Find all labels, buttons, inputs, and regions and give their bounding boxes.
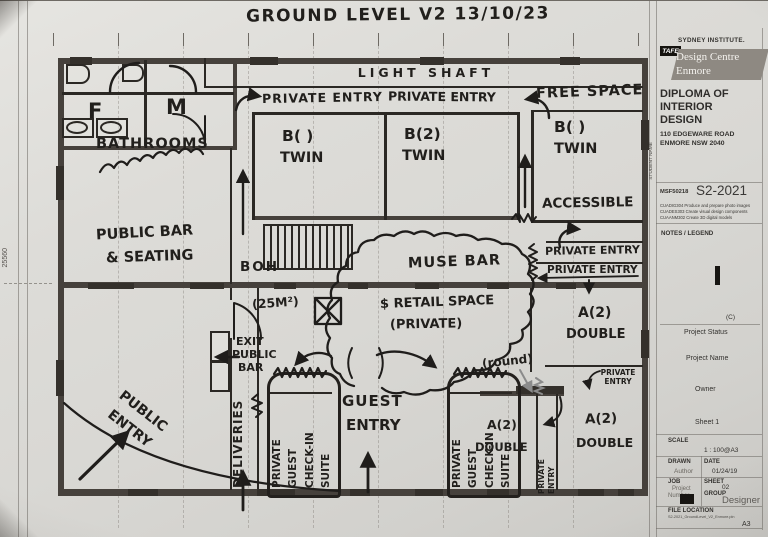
suite-2-label: PRIVATE GUEST CHECK-IN SUITE [452, 382, 512, 488]
unit-line3: CUAANM302 Create 3D digital models [660, 215, 732, 220]
label-private-entry-mid-1: PRIVATE ENTRY [545, 244, 640, 257]
scale-label: SCALE [668, 438, 688, 444]
scale-value: 1 : 100@A3 [704, 447, 738, 454]
label-a2-sw-type: DOUBLE [475, 441, 528, 453]
arrow-corridor-hook [546, 397, 561, 424]
label-guest: GUEST [342, 394, 403, 410]
label-private-entry-mid-2: PRIVATE ENTRY [547, 265, 638, 276]
group-value: Designer [722, 495, 760, 506]
scallop-underline [100, 149, 203, 172]
label-a2-ne: A(2) [578, 306, 611, 321]
author-value: Author [674, 468, 693, 475]
drawn-label: DRAWN [668, 459, 691, 465]
design-centre-text: Design Centre Enmore [676, 51, 764, 79]
label-a2-se-type: DOUBLE [576, 436, 633, 449]
project-status-label: Project Status [684, 329, 728, 336]
label-private-entry-top-left: PRIVATE ENTRY [262, 90, 383, 105]
date-label: DATE [704, 459, 720, 465]
unit-line2: CUADES303 Create visual design component… [660, 209, 748, 214]
hand-mark [680, 494, 694, 504]
address-line1: 110 EDGEWARE ROAD [660, 131, 734, 138]
copyright-label: (C) [726, 314, 735, 321]
label-a2-se: A(2) [585, 411, 618, 426]
label-room-b2-type: TWIN [402, 149, 445, 164]
file-path: S2-2021_GroundLevel_V2_Enmore.pln [668, 515, 758, 519]
label-area-25m2: (25M²) [252, 294, 300, 310]
address-line2: ENMORE NSW 2040 [660, 140, 725, 147]
arrow-public-entry [80, 434, 126, 479]
label-exit-bar: BAR [238, 362, 263, 374]
design-centre-line1: Design Centre [676, 51, 764, 65]
door-arc [110, 63, 139, 92]
hand-mark [715, 266, 720, 285]
label-retail-private: (PRIVATE) [390, 317, 462, 332]
label-muse-bar: MUSE BAR [408, 253, 502, 271]
course-line2: INTERIOR [660, 101, 713, 113]
suite-word: PRIVATE [272, 382, 283, 488]
unit-line1: CUADIG304 Produce and prepare photo imag… [660, 203, 750, 208]
arrow-to-suite-1 [297, 353, 331, 363]
label-exit: EXIT [236, 336, 264, 348]
label-female: F [88, 100, 102, 122]
titleblock-border [649, 0, 650, 537]
notes-legend-label: NOTES / LEGEND [661, 230, 713, 237]
entry-gap-curve [348, 348, 352, 378]
titleblock-divider [656, 528, 762, 529]
floor-plan-sheet-photo: GROUND LEVEL V2 13/10/23 25560 [0, 0, 768, 537]
arrow-round-note [520, 370, 531, 390]
date-value: 01/24/19 [712, 468, 737, 475]
titleblock-divider [656, 456, 762, 457]
label-accessible: ACCESSIBLE [542, 195, 634, 211]
suite-top-squiggle [274, 368, 326, 377]
suite-word: CHECK-IN [485, 382, 496, 488]
course-line3: DESIGN [660, 114, 702, 126]
corridor-private-entry-label: PRIVATE ENTRY [538, 434, 556, 494]
arrow-private-entry-left [236, 96, 258, 110]
door-arc [170, 66, 196, 92]
paper-size: A3 [742, 521, 751, 528]
sheet-label: SHEET [704, 479, 724, 485]
arrow-entry-strike [540, 276, 638, 278]
label-room-b3-type: TWIN [554, 142, 597, 157]
titleblock-divider [656, 477, 762, 478]
label-a2-ne-type: DOUBLE [566, 328, 625, 342]
titleblock-divider [656, 434, 762, 435]
wall-break-squiggle [512, 214, 536, 222]
label-private-entry-top-right: PRIVATE ENTRY [388, 90, 496, 104]
label-a2-sw: A(2) [487, 418, 517, 431]
suite-word: SUITE [321, 382, 332, 488]
suite-1-label: PRIVATE GUEST CHECK-IN SUITE [272, 382, 332, 488]
project-name-label: Project Name [686, 355, 728, 362]
round-squiggle [535, 378, 543, 394]
suite-word: GUEST [468, 382, 479, 488]
label-male: M [166, 96, 187, 118]
label-private-entry-small: PRIVATE ENTRY [596, 368, 640, 386]
job-label: JOB [668, 479, 680, 485]
course-code: MSF50218 [660, 189, 688, 195]
label-room-b1-type: TWIN [280, 151, 323, 166]
label-exit-public: PUBLIC [232, 349, 277, 361]
titleblock-border [762, 28, 763, 530]
course-line1: DIPLOMA OF [660, 88, 729, 100]
titleblock-divider [656, 506, 762, 507]
owner-label: Owner [695, 386, 716, 393]
semester-code: S2-2021 [696, 183, 747, 198]
titleblock-divider [660, 324, 760, 325]
label-light-shaft: LIGHT SHAFT [210, 66, 642, 79]
label-room-b1: B( ) [282, 128, 313, 144]
suite-word: SUITE [501, 382, 512, 488]
sheet1-label: Sheet 1 [695, 419, 719, 426]
titleblock-divider [656, 223, 762, 224]
label-room-b3: B( ) [554, 119, 585, 135]
corridor-word: ENTRY [548, 434, 556, 494]
file-location-label: FILE LOCATION [668, 508, 714, 514]
label-public-bar-seating: & SEATING [106, 248, 194, 266]
label-room-b2: B(2) [404, 126, 441, 142]
label-deliveries: DELIVERIES [232, 386, 245, 488]
sketch-layer [0, 0, 768, 537]
sheet-number-value: 02 [722, 484, 729, 491]
wall-break-squiggle [252, 394, 262, 417]
arrow-to-suite-2 [377, 352, 434, 366]
titleblock-divider [701, 456, 702, 506]
corridor-word: PRIVATE [538, 434, 546, 494]
label-boh: BOH [240, 260, 279, 274]
project-word: Project [672, 486, 691, 492]
label-bathrooms: BATHROOMS [96, 137, 209, 152]
student-name-label: STUDENT NAME [649, 142, 654, 180]
design-centre-line2: Enmore [676, 65, 764, 79]
institute-name: SYDNEY INSTITUTE. [678, 37, 745, 44]
suite-word: CHECK-IN [305, 382, 316, 488]
suite-word: GUEST [288, 382, 299, 488]
label-guest-entry: ENTRY [346, 418, 401, 434]
suite-word: PRIVATE [452, 382, 463, 488]
